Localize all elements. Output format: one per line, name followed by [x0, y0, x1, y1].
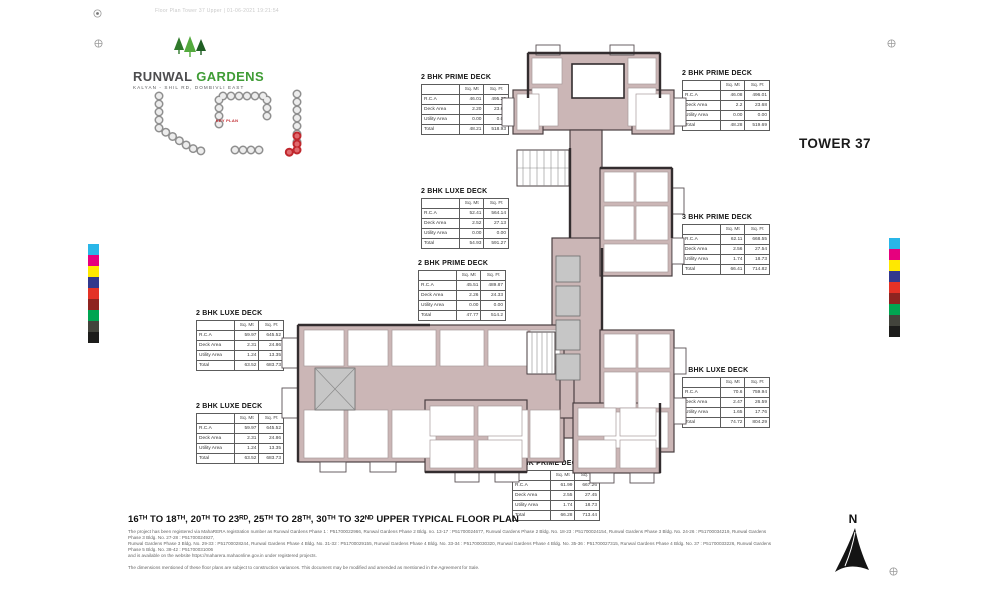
table-corner-cell: [197, 321, 235, 331]
table-row: R.C.A59.97645.52: [197, 424, 284, 434]
color-calibration-bar-left: [88, 244, 99, 343]
table-value-sqmt: 46.08: [721, 91, 745, 101]
rera-note-line: The project has been registered via Maha…: [128, 529, 776, 541]
table-row-label: Utility Area: [197, 351, 235, 361]
rera-note-line: and is available on the website https://…: [128, 553, 776, 559]
calibration-swatch: [88, 255, 99, 266]
table-value-sqft: 17.76: [745, 408, 770, 418]
table-row: Utility Area1.2413.35: [197, 351, 284, 361]
calibration-swatch: [88, 299, 99, 310]
calibration-swatch: [88, 310, 99, 321]
table-value-sqmt: 1.65: [721, 408, 745, 418]
floor-plan-sheet: Floor Plan Tower 37 Upper | 01-06-2021 1…: [0, 0, 1000, 600]
brand-name-secondary: GARDENS: [196, 69, 264, 84]
table-value-sqft: 714.82: [745, 265, 770, 275]
calibration-swatch: [88, 288, 99, 299]
table-row-label: R.C.A: [197, 424, 235, 434]
table-value-sqft: 759.94: [745, 388, 770, 398]
calibration-swatch: [88, 321, 99, 332]
table-value-sqft: 519.69: [745, 121, 770, 131]
calibration-swatch: [889, 238, 900, 249]
registration-mark-icon: [93, 9, 102, 18]
area-table: Sq. MtSq. FtR.C.A59.97645.52Deck Area2.3…: [196, 320, 284, 371]
table-value-sqmt: 62.11: [721, 235, 745, 245]
registration-mark-icon: [887, 39, 896, 48]
table-row-label: Utility Area: [197, 444, 235, 454]
table-header-row: Sq. MtSq. Ft: [197, 414, 284, 424]
area-table-2bhk-luxe-left1: 2 BHK LUXE DECKSq. MtSq. FtR.C.A59.97645…: [196, 310, 284, 371]
table-value-sqft: 26.59: [745, 398, 770, 408]
area-table-2bhk-luxe-left2: 2 BHK LUXE DECKSq. MtSq. FtR.C.A59.97645…: [196, 403, 284, 464]
table-row-label: Deck Area: [197, 434, 235, 444]
table-value-sqft: 804.29: [745, 418, 770, 428]
table-row-label: R.C.A: [197, 331, 235, 341]
table-value-sqmt: 2.31: [235, 341, 259, 351]
table-value-sqft: 0.00: [745, 111, 770, 121]
table-corner-cell: [197, 414, 235, 424]
table-row: Utility Area1.2413.35: [197, 444, 284, 454]
table-title: 2 BHK LUXE DECK: [196, 310, 284, 317]
calibration-swatch: [889, 271, 900, 282]
calibration-swatch: [88, 244, 99, 255]
area-table: Sq. MtSq. FtR.C.A59.97645.52Deck Area2.3…: [196, 413, 284, 464]
table-value-sqmt: 1.24: [235, 351, 259, 361]
calibration-swatch: [88, 277, 99, 288]
table-value-sqmt: 74.72: [721, 418, 745, 428]
key-plan-label: KEY PLAN: [216, 118, 239, 123]
calibration-swatch: [889, 326, 900, 337]
calibration-swatch: [889, 260, 900, 271]
north-label: N: [833, 512, 873, 526]
table-value-sqmt: 0.00: [721, 111, 745, 121]
table-value-sqmt: 2.31: [235, 434, 259, 444]
rera-notes: The project has been registered via Maha…: [128, 529, 776, 571]
sheet-meta-text: Floor Plan Tower 37 Upper | 01-06-2021 1…: [155, 8, 279, 14]
table-value-sqmt: 1.24: [235, 444, 259, 454]
table-row: R.C.A59.97645.52: [197, 331, 284, 341]
table-row-label: Total: [197, 454, 235, 464]
floor-plan-title: 16ᵀᴴ TO 18ᵀᴴ, 20ᵀᴴ TO 23ᴿᴰ, 25ᵀᴴ TO 28ᵀᴴ…: [128, 514, 519, 525]
table-row: Deck Area2.3124.86: [197, 434, 284, 444]
table-col-header: Sq. Mt: [235, 414, 259, 424]
table-value-sqmt: 66.41: [721, 265, 745, 275]
table-row: Total63.52683.73: [197, 361, 284, 371]
floor-plan-drawing: [280, 38, 700, 513]
table-row-label: Total: [197, 361, 235, 371]
table-value-sqmt: 48.28: [721, 121, 745, 131]
table-value-sqft: 23.68: [745, 101, 770, 111]
table-col-header: Sq. Mt: [235, 321, 259, 331]
table-header-row: Sq. MtSq. Ft: [197, 321, 284, 331]
calibration-swatch: [889, 304, 900, 315]
table-row: Deck Area2.3124.86: [197, 341, 284, 351]
table-col-header: Sq. Mt: [721, 378, 745, 388]
calibration-swatch: [889, 282, 900, 293]
table-value-sqmt: 59.97: [235, 331, 259, 341]
table-value-sqmt: 63.52: [235, 454, 259, 464]
brand-name-primary: RUNWAL: [133, 69, 192, 84]
table-value-sqmt: 1.74: [721, 255, 745, 265]
table-col-header: Sq. Ft: [745, 378, 770, 388]
table-col-header: Sq. Mt: [721, 81, 745, 91]
table-value-sqmt: 70.6: [721, 388, 745, 398]
disclaimer-line: The dimensions mentioned of these floor …: [128, 565, 776, 571]
north-indicator: N: [833, 512, 873, 581]
tower-label: TOWER 37: [799, 136, 871, 151]
table-value-sqft: 496.01: [745, 91, 770, 101]
north-arrow-icon: [833, 526, 873, 576]
calibration-swatch: [889, 315, 900, 326]
registration-mark-icon: [889, 567, 898, 576]
table-value-sqft: 27.54: [745, 245, 770, 255]
table-value-sqmt: 2.56: [721, 245, 745, 255]
table-value-sqmt: 2.2: [721, 101, 745, 111]
table-row: Total63.52683.73: [197, 454, 284, 464]
rera-note-line: Runwal Gardens Phase 3 Bldg. No. 29-33 :…: [128, 541, 776, 553]
color-calibration-bar-right: [889, 238, 900, 337]
calibration-swatch: [88, 332, 99, 343]
table-value-sqft: 18.73: [745, 255, 770, 265]
table-value-sqmt: 2.47: [721, 398, 745, 408]
calibration-swatch: [889, 249, 900, 260]
calibration-swatch: [889, 293, 900, 304]
table-col-header: Sq. Ft: [745, 81, 770, 91]
calibration-swatch: [88, 266, 99, 277]
table-row-label: Deck Area: [197, 341, 235, 351]
table-value-sqft: 668.55: [745, 235, 770, 245]
table-col-header: Sq. Mt: [721, 225, 745, 235]
registration-mark-icon: [94, 39, 103, 48]
table-title: 2 BHK LUXE DECK: [196, 403, 284, 410]
table-value-sqmt: 59.97: [235, 424, 259, 434]
table-col-header: Sq. Ft: [745, 225, 770, 235]
table-value-sqmt: 63.52: [235, 361, 259, 371]
